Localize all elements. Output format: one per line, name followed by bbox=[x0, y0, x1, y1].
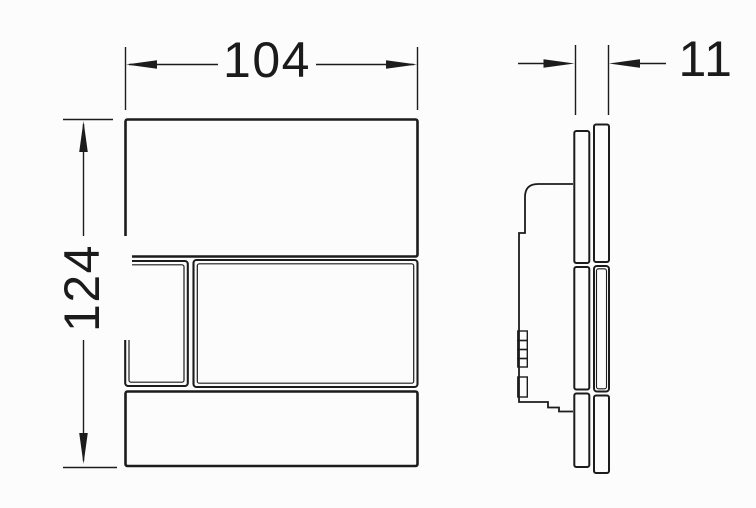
technical-drawing: 104 124 11 bbox=[0, 0, 756, 508]
dimension-depth-arrow-left bbox=[609, 59, 640, 68]
front-bottom-panel bbox=[126, 392, 418, 467]
front-top-panel bbox=[126, 120, 418, 257]
dimension-width-arrow-right bbox=[386, 60, 417, 69]
dimension-height-arrow-down bbox=[79, 433, 88, 464]
dimension-depth bbox=[518, 45, 666, 115]
side-faceplate-bottom bbox=[594, 396, 609, 474]
dimension-width-value: 104 bbox=[218, 34, 316, 86]
dimension-height-arrow-up bbox=[79, 121, 88, 152]
side-backplate-middle bbox=[574, 267, 589, 390]
side-backplate bbox=[574, 131, 589, 467]
side-backplate-bottom bbox=[574, 394, 589, 468]
dimension-height-value: 124 bbox=[32, 236, 132, 340]
dimension-depth-value: 11 bbox=[672, 33, 740, 85]
dimension-depth-extension-lines bbox=[576, 45, 609, 115]
front-view bbox=[125, 120, 417, 467]
front-large-button bbox=[194, 260, 418, 387]
front-large-button-inner bbox=[197, 264, 413, 383]
front-small-button-inner bbox=[129, 265, 184, 382]
dimension-depth-arrow-right bbox=[544, 59, 575, 68]
side-faceplate-button-inner bbox=[597, 269, 607, 389]
side-faceplate bbox=[594, 125, 609, 474]
side-faceplate-top bbox=[594, 125, 609, 263]
side-backplate-top bbox=[574, 131, 589, 263]
dimension-width-arrow-left bbox=[126, 60, 157, 69]
front-small-button bbox=[125, 261, 188, 386]
side-view bbox=[518, 125, 609, 474]
